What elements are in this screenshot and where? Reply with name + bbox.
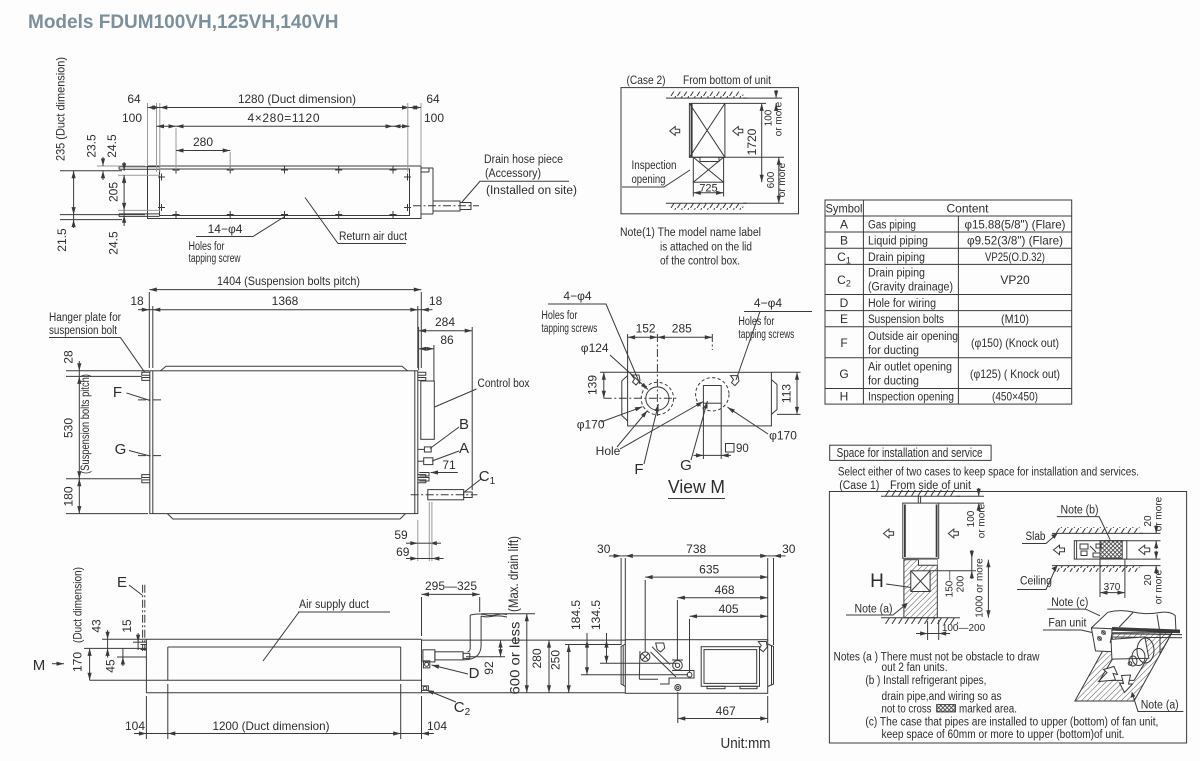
svg-text:71: 71: [442, 458, 456, 472]
svg-text:24.5: 24.5: [107, 231, 121, 255]
svg-text:(Duct dimension): (Duct dimension): [70, 567, 84, 643]
svg-text:(Gravity drainage): (Gravity drainage): [868, 282, 953, 294]
svg-text:(Case 1): (Case 1): [839, 480, 879, 492]
svg-text:Models FDUM100VH,125VH,140VH: Models FDUM100VH,125VH,140VH: [28, 12, 338, 33]
svg-text:200: 200: [956, 575, 967, 592]
svg-text:tapping screw: tapping screw: [189, 253, 241, 265]
svg-text:64: 64: [426, 92, 440, 106]
svg-text:or more: or more: [1154, 569, 1165, 604]
svg-text:(Accessory): (Accessory): [485, 168, 541, 180]
svg-text:Fan unit: Fan unit: [1048, 618, 1087, 630]
svg-text:180: 180: [61, 486, 75, 506]
svg-text:30: 30: [782, 542, 796, 556]
svg-text:C1: C1: [479, 468, 496, 487]
svg-text:Drain piping: Drain piping: [868, 268, 925, 280]
svg-text:280: 280: [193, 135, 213, 149]
svg-text:635: 635: [699, 563, 719, 577]
svg-text:A: A: [840, 218, 848, 232]
svg-text:for ducting: for ducting: [868, 376, 919, 388]
svg-text:Slab: Slab: [1026, 531, 1046, 543]
svg-text:4×280=1120: 4×280=1120: [248, 111, 320, 125]
svg-text:F: F: [113, 384, 122, 401]
svg-text:20: 20: [1143, 574, 1154, 586]
svg-text:738: 738: [686, 542, 706, 556]
svg-text:of the control box.: of the control box.: [660, 256, 740, 268]
svg-text:(φ150) (Knock out): (φ150) (Knock out): [971, 336, 1059, 350]
svg-text:marked area.: marked area.: [959, 704, 1017, 716]
svg-text:(c) The case that pipes are i: (c) The case that pipes are installed to…: [865, 717, 1158, 729]
svg-text:Hole: Hole: [596, 444, 621, 458]
svg-text:1404 (Suspension bolts pitch): 1404 (Suspension bolts pitch): [217, 274, 360, 288]
svg-text:not to cross: not to cross: [882, 704, 932, 716]
svg-text:24.5: 24.5: [105, 134, 119, 158]
svg-text:43: 43: [90, 619, 104, 633]
svg-text:(φ125) ( Knock out): (φ125) ( Knock out): [970, 367, 1060, 381]
svg-text:E: E: [840, 312, 848, 326]
svg-text:Hanger plate for: Hanger plate for: [49, 312, 121, 324]
svg-text:Symbol: Symbol: [826, 202, 863, 216]
svg-text:90: 90: [736, 443, 749, 455]
svg-text:530: 530: [61, 418, 75, 438]
svg-text:1000 or more: 1000 or more: [975, 558, 986, 618]
svg-text:100: 100: [424, 111, 444, 125]
svg-text:45: 45: [104, 659, 118, 673]
svg-text:From bottom of unit: From bottom of unit: [683, 73, 772, 87]
svg-text:Drain hose piece: Drain hose piece: [484, 154, 563, 166]
svg-text:Note(1) The model name label: Note(1) The model name label: [620, 227, 761, 239]
svg-text:Content: Content: [946, 202, 989, 216]
svg-text:467: 467: [716, 704, 736, 718]
svg-text:Air supply duct: Air supply duct: [299, 599, 370, 611]
svg-text:suspension bolt: suspension bolt: [49, 325, 118, 337]
svg-text:F: F: [634, 461, 643, 478]
svg-text:for ducting: for ducting: [868, 345, 919, 357]
svg-text:tapping screws: tapping screws: [541, 323, 597, 335]
svg-text:4−φ4: 4−φ4: [563, 289, 591, 303]
svg-text:18: 18: [130, 294, 144, 308]
svg-text:184.5: 184.5: [569, 600, 583, 630]
svg-text:M: M: [33, 657, 46, 674]
svg-text:86: 86: [440, 333, 454, 347]
svg-text:View M: View M: [668, 477, 725, 497]
svg-text:295—325: 295—325: [425, 579, 477, 593]
svg-text:235 (Duct dimension): 235 (Duct dimension): [54, 57, 68, 161]
svg-text:Return air duct: Return air duct: [339, 231, 408, 243]
svg-text:(Max. drain lift): (Max. drain lift): [506, 536, 521, 612]
svg-text:tapping screws: tapping screws: [738, 329, 794, 341]
svg-text:B: B: [840, 234, 848, 248]
svg-text:1720: 1720: [745, 128, 759, 155]
svg-text:285: 285: [672, 322, 692, 336]
svg-text:Outside air opening: Outside air opening: [868, 331, 958, 343]
svg-text:G: G: [680, 457, 692, 474]
svg-text:20: 20: [1143, 515, 1154, 527]
svg-text:Note (c): Note (c): [1051, 597, 1088, 609]
svg-text:C2: C2: [837, 273, 851, 289]
svg-text:(M10): (M10): [1001, 312, 1029, 326]
svg-text:15: 15: [120, 619, 134, 633]
svg-text:468: 468: [715, 583, 735, 597]
svg-text:100: 100: [966, 510, 977, 527]
svg-text:φ124: φ124: [581, 341, 609, 355]
svg-text:A: A: [459, 440, 469, 457]
svg-text:Holes for: Holes for: [189, 241, 225, 253]
svg-text:opening: opening: [632, 174, 666, 186]
svg-text:600 or less: 600 or less: [507, 622, 523, 695]
svg-text:φ15.88(5/8") (Flare): φ15.88(5/8") (Flare): [965, 218, 1066, 232]
svg-text:600: 600: [766, 171, 777, 188]
svg-text:is attached on the lid: is attached on the lid: [660, 242, 752, 254]
svg-text:φ170: φ170: [769, 429, 797, 443]
svg-text:(Installed on site): (Installed on site): [486, 185, 577, 197]
svg-text:Air outlet opening: Air outlet opening: [868, 362, 952, 374]
svg-text:C2: C2: [454, 699, 471, 718]
svg-text:F: F: [840, 336, 847, 350]
svg-text:Control box: Control box: [478, 378, 530, 390]
svg-text:drain pipe,and wiring so as: drain pipe,and wiring so as: [882, 691, 1002, 703]
svg-text:100: 100: [122, 111, 142, 125]
svg-text:725: 725: [699, 182, 717, 194]
svg-text:D: D: [469, 665, 480, 682]
svg-text:or more: or more: [774, 101, 785, 136]
svg-text:H: H: [870, 571, 884, 592]
svg-text:Note (b): Note (b): [1061, 505, 1099, 517]
svg-text:1200 (Duct dimension): 1200 (Duct dimension): [213, 719, 330, 733]
svg-text:or more: or more: [1154, 496, 1165, 531]
svg-text:Gas piping: Gas piping: [868, 220, 916, 232]
svg-text:18: 18: [429, 294, 443, 308]
svg-text:30: 30: [597, 542, 611, 556]
svg-text:(Suspension bolts pitch): (Suspension bolts pitch): [78, 374, 92, 474]
svg-text:250: 250: [549, 650, 563, 670]
svg-text:64: 64: [127, 92, 141, 106]
svg-text:φ9.52(3/8") (Flare): φ9.52(3/8") (Flare): [967, 234, 1063, 248]
svg-text:Liquid piping: Liquid piping: [868, 236, 928, 248]
svg-text:Select either of two cases to: Select either of two cases to keep space…: [838, 467, 1139, 479]
svg-text:Note (a): Note (a): [1141, 700, 1179, 712]
svg-text:Suspension bolts: Suspension bolts: [868, 314, 944, 326]
svg-text:4−φ4: 4−φ4: [754, 296, 782, 310]
svg-text:VP25(O.D.32): VP25(O.D.32): [985, 250, 1045, 264]
svg-text:280: 280: [530, 648, 544, 668]
svg-text:E: E: [117, 574, 127, 591]
svg-text:keep space of 60mm or more to: keep space of 60mm or more to upper (bot…: [882, 729, 1125, 741]
svg-text:113: 113: [780, 384, 794, 403]
svg-text:134.5: 134.5: [589, 600, 603, 630]
svg-text:21.5: 21.5: [55, 228, 69, 252]
svg-text:405: 405: [719, 602, 739, 616]
svg-text:370: 370: [1104, 582, 1121, 593]
svg-text:284: 284: [435, 315, 455, 329]
svg-text:(Case 2): (Case 2): [627, 73, 666, 87]
svg-text:or more: or more: [977, 503, 988, 538]
svg-text:(450×450): (450×450): [992, 389, 1038, 403]
svg-text:1280 (Duct dimension): 1280 (Duct dimension): [238, 92, 356, 106]
svg-text:G: G: [115, 441, 127, 458]
svg-text:92: 92: [482, 661, 496, 675]
svg-text:or more: or more: [777, 162, 788, 197]
svg-text:150—: 150—: [945, 571, 956, 598]
svg-text:G: G: [839, 367, 848, 381]
svg-text:Space for installation and ser: Space for installation and service: [837, 446, 983, 460]
svg-text:28: 28: [61, 350, 75, 364]
svg-text:Hole for wiring: Hole for wiring: [868, 298, 936, 310]
svg-text:104: 104: [125, 719, 145, 733]
svg-text:104: 104: [427, 719, 447, 733]
svg-text:Note (a): Note (a): [855, 604, 893, 616]
svg-text:φ170: φ170: [577, 418, 605, 432]
svg-text:59: 59: [394, 528, 408, 542]
svg-text:Inspection opening: Inspection opening: [868, 391, 954, 403]
svg-text:100—200: 100—200: [942, 623, 986, 634]
svg-text:out 2 fan units.: out 2 fan units.: [882, 662, 948, 674]
svg-text:14−φ4: 14−φ4: [208, 222, 243, 236]
svg-text:1368: 1368: [272, 294, 299, 308]
svg-text:Unit:mm: Unit:mm: [721, 735, 771, 752]
svg-text:Holes for: Holes for: [738, 316, 774, 328]
svg-text:Inspection: Inspection: [632, 160, 677, 172]
svg-text:C1: C1: [837, 250, 851, 266]
svg-text:152: 152: [636, 322, 656, 336]
svg-text:23.5: 23.5: [85, 134, 99, 158]
svg-text:Drain piping: Drain piping: [868, 252, 925, 264]
svg-text:139: 139: [586, 375, 600, 395]
svg-text:B: B: [459, 416, 469, 433]
svg-text:170: 170: [70, 652, 84, 672]
svg-text:H: H: [840, 389, 849, 403]
svg-text:(b ) Install refrigerant pipe: (b ) Install refrigerant pipes,: [865, 675, 986, 687]
svg-text:205: 205: [107, 182, 121, 202]
svg-text:Holes for: Holes for: [541, 310, 577, 322]
svg-text:D: D: [840, 296, 849, 310]
svg-text:69: 69: [396, 545, 410, 559]
svg-text:VP20: VP20: [1000, 273, 1030, 287]
